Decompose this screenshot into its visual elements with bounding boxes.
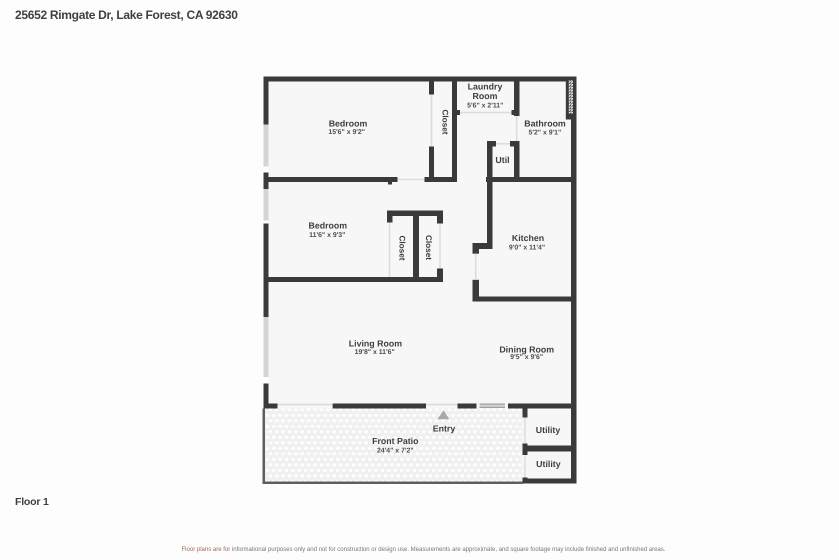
svg-text:Living Room: Living Room	[349, 338, 402, 348]
svg-text:5'6" x 2'11": 5'6" x 2'11"	[467, 103, 503, 110]
svg-text:Utility: Utility	[536, 459, 561, 469]
svg-text:Closet: Closet	[424, 235, 433, 260]
svg-text:5'2" x 9'1": 5'2" x 9'1"	[528, 130, 561, 137]
svg-text:Dining Room: Dining Room	[499, 344, 554, 354]
svg-text:15'6" x 9'2": 15'6" x 9'2"	[328, 129, 365, 136]
svg-text:Closet: Closet	[398, 235, 407, 260]
svg-text:Entry: Entry	[433, 424, 456, 434]
svg-text:Util: Util	[495, 155, 509, 165]
svg-text:Utility: Utility	[536, 425, 561, 435]
svg-text:9'5" x 9'6": 9'5" x 9'6"	[510, 354, 543, 361]
svg-text:Bedroom: Bedroom	[308, 221, 347, 231]
svg-text:Closet: Closet	[441, 109, 450, 134]
svg-text:Front Patio: Front Patio	[372, 436, 419, 446]
svg-text:Room: Room	[473, 91, 498, 101]
svg-text:Bathroom: Bathroom	[524, 118, 566, 128]
svg-text:Kitchen: Kitchen	[512, 233, 544, 243]
svg-text:Bedroom: Bedroom	[329, 118, 368, 128]
svg-text:Laundry: Laundry	[468, 82, 503, 92]
svg-text:11'6" x 9'3": 11'6" x 9'3"	[309, 232, 345, 239]
svg-text:24'4" x 7'2": 24'4" x 7'2"	[377, 448, 414, 455]
svg-text:9'0" x 11'4": 9'0" x 11'4"	[509, 245, 545, 252]
svg-text:19'8" x 11'6": 19'8" x 11'6"	[355, 349, 395, 356]
